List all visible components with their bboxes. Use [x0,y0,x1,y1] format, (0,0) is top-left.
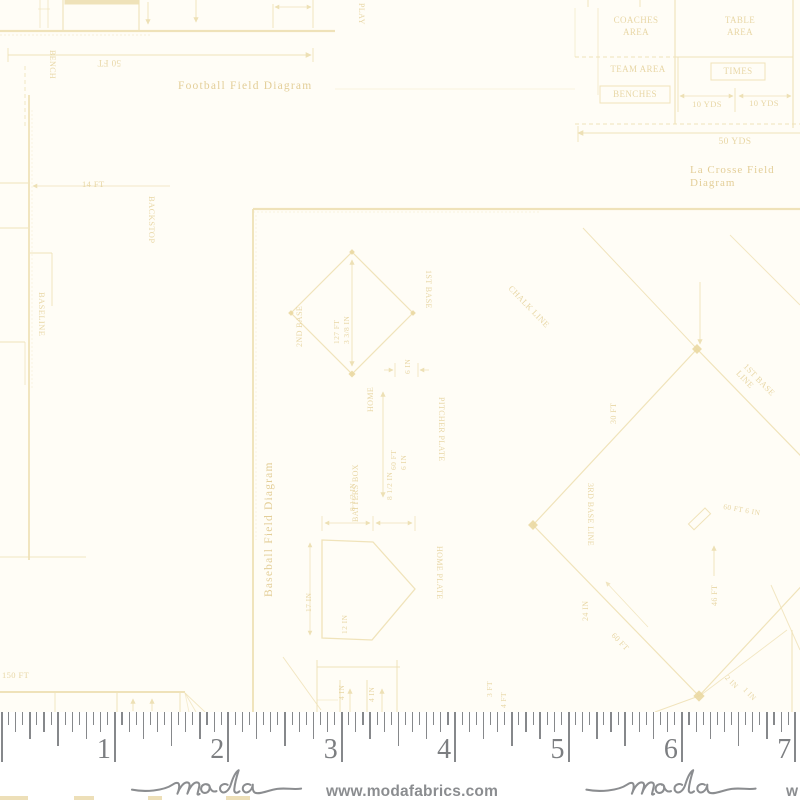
ruler-tick [745,712,746,725]
ruler-number: 4 [411,736,451,764]
ruler-tick [533,712,534,725]
print-label: La Crosse Field Diagram [690,164,800,189]
ruler-tick [150,712,151,725]
ruler-tick [639,712,640,732]
ruler-tick [788,712,789,725]
ruler-tick [43,712,44,732]
print-line [771,585,800,650]
ruler-tick [561,712,562,725]
fabric-edge-mark [226,796,250,800]
ruler-number: 5 [525,736,565,764]
ruler-and-selvage: 1234567 www.modafabrics.com [0,712,800,800]
ruler-tick [214,712,215,732]
ruler-tick [114,712,116,762]
ruler-tick [483,712,484,739]
ruler-tick [398,712,400,746]
print-label: BENCHES [600,89,670,99]
print-label: 1ST BASE [424,270,433,309]
print-label: BACKSTOP [146,196,156,243]
print-label: Baseball Field Diagram [263,461,276,597]
ruler-number: 2 [184,736,224,764]
ruler-tick [86,712,87,739]
ruler-tick [596,712,597,739]
fabric-edge-mark [74,796,94,800]
print-box [65,0,139,4]
fabric-print: Football Field Diagram50 FTBENCHPLAY14 F… [0,0,800,712]
print-label: COACHES AREA [596,14,676,38]
ruler-tick [603,712,604,725]
ruler-tick [518,712,519,725]
ruler-tick [610,712,611,732]
ruler-tick [710,712,711,739]
ruler-tick [327,712,328,732]
ruler-tick [129,712,130,732]
print-line [606,582,648,627]
ruler-tick [618,712,619,725]
ruler-tick [313,712,314,739]
print-label: BENCH [48,50,57,79]
print-shape [322,540,415,640]
ruler-tick [157,712,158,732]
ruler-tick [100,712,101,732]
print-label: PLAY [357,3,366,25]
ruler-tick [249,712,250,725]
ruler-tick [454,712,456,762]
ruler-tick [8,712,9,725]
ruler-tick [107,712,108,725]
ruler-tick [773,712,774,725]
print-box [688,508,710,530]
ruler-tick [405,712,406,725]
ruler-tick [15,712,16,732]
ruler-tick [185,712,186,732]
ruler-tick [759,712,760,725]
fabric-edge-mark [0,796,28,800]
ruler-tick [227,712,229,762]
ruler-tick [688,712,689,725]
ruler-tick [362,712,363,725]
print-label: 150 FT [2,671,29,681]
print-label: 127 FT 3 3/8 IN [332,316,352,344]
print-line [701,630,787,695]
print-label: 50 FT [97,58,121,68]
ruler-tick [653,712,654,739]
ruler-tick [299,712,300,732]
print-label: 30 FT [609,403,618,424]
ruler-tick [681,712,683,762]
print-label: 60 FT 6 IN [389,450,409,470]
ruler-tick [306,712,307,725]
ruler-tick [511,712,513,746]
website-url: www.modafabrics.com [326,783,498,800]
ruler-tick [284,712,286,746]
print-label: TABLE AREA [698,14,782,38]
print-line [730,235,800,305]
ruler-tick [497,712,498,732]
ruler-tick [143,712,144,739]
ruler-tick [447,712,448,725]
selvage-strip: www.modafabrics.com w [0,766,800,800]
ruler-tick [341,712,343,762]
print-line [655,696,699,712]
moda-logo [114,768,319,800]
ruler-tick [504,712,505,725]
ruler-tick [738,712,740,746]
print-label: 8 1/2 IN [349,483,358,511]
ruler-tick [426,712,427,739]
print-label: 12 IN [341,615,350,634]
ruler-tick [242,712,243,732]
ruler-tick [547,712,548,725]
ruler-tick [22,712,23,725]
print-line [283,657,321,710]
ruler-tick [277,712,278,725]
print-label: HOME PLATE [435,546,444,600]
ruler-tick [582,712,583,732]
print-label: 8 1/2 IN [386,472,395,500]
ruler-tick [525,712,526,732]
ruler-tick [199,712,200,739]
print-label: HOME [366,387,375,412]
ruler-tick [178,712,179,725]
print-label: Football Field Diagram [178,80,312,93]
ruler-tick [667,712,668,732]
ruler-tick [334,712,335,725]
ruler-tick [703,712,704,725]
ruler-tick [568,712,570,762]
ruler-tick [1,712,3,762]
ruler-tick [766,712,767,739]
ruler-tick [263,712,264,725]
print-label: PITCHER PLATE [437,397,446,462]
website-url-partial: w [786,783,798,800]
ruler-tick [419,712,420,725]
ruler-tick [575,712,576,725]
ruler-tick [93,712,94,725]
print-label: 10 YDS [680,100,734,110]
ruler-tick [355,712,356,732]
print-label: 3RD BASE LINE [586,483,595,546]
print-label: 24 IN [581,601,590,621]
ruler-tick [440,712,441,732]
ruler-tick [292,712,293,725]
ruler-tick [320,712,321,725]
ruler-tick [384,712,385,732]
ruler-tick [79,712,80,725]
ruler-tick [256,712,257,739]
ruler-tick [433,712,434,725]
ruler-tick [377,712,378,725]
ruler-tick [36,712,37,725]
ruler-tick [136,712,137,725]
ruler-number: 7 [751,736,791,764]
ruler-tick [235,712,236,725]
ruler-tick [781,712,782,732]
ruler-number: 3 [298,736,338,764]
ruler-tick [206,712,207,725]
print-label: 10 YDS [737,99,791,109]
ruler-tick [462,712,463,725]
ruler-number: 6 [638,736,678,764]
ruler-tick [65,712,66,725]
ruler-tick [391,712,392,725]
ruler-tick [674,712,675,725]
print-label: 50 YDS [695,137,775,148]
ruler-tick [554,712,555,732]
ruler-tick [539,712,540,739]
ruler-tick [476,712,477,725]
print-label: 6 IN [404,359,413,374]
ruler-tick [270,712,271,732]
ruler-tick [57,712,59,746]
print-label: 4 IN [368,687,377,702]
ruler-tick [412,712,413,732]
ruler-tick [192,712,193,725]
print-label: 14 FT [82,180,105,190]
ruler-tick [121,712,122,725]
ruler-tick [794,712,796,762]
print-label: 2ND BASE [295,306,304,347]
ruler-tick [632,712,633,725]
print-label: 4 IN [338,685,347,700]
ruler-tick [369,712,370,739]
ruler-tick [164,712,165,725]
ruler-tick [624,712,626,746]
moda-logo [572,768,770,800]
ruler-tick [717,712,718,725]
print-line [583,228,697,349]
print-label: 4 FT [500,692,509,708]
ruler-tick [29,712,30,739]
ruler-number: 1 [71,736,111,764]
print-label: 17 IN [305,593,314,612]
ruler-tick [589,712,590,725]
print-label: 46 FT [710,585,719,606]
print-label: TIMES [711,66,765,76]
ruler-tick [724,712,725,732]
fabric-swatch-image: Football Field Diagram50 FTBENCHPLAY14 F… [0,0,800,800]
print-label: 3 FT [486,681,495,697]
ruler-tick [171,712,173,746]
ruler-tick [348,712,349,725]
print-label: TEAM AREA [600,64,676,74]
ruler-tick [490,712,491,725]
ruler-tick [221,712,222,725]
ruler-tick [646,712,647,725]
ruler-tick [660,712,661,725]
ruler-tick [469,712,470,732]
ruler-tick [752,712,753,732]
fabric-edge-mark [148,796,162,800]
ruler-tick [72,712,73,732]
print-label: BASELINE [36,292,46,336]
ruler-tick [696,712,697,732]
ruler-tick [731,712,732,725]
ruler-tick [51,712,52,725]
